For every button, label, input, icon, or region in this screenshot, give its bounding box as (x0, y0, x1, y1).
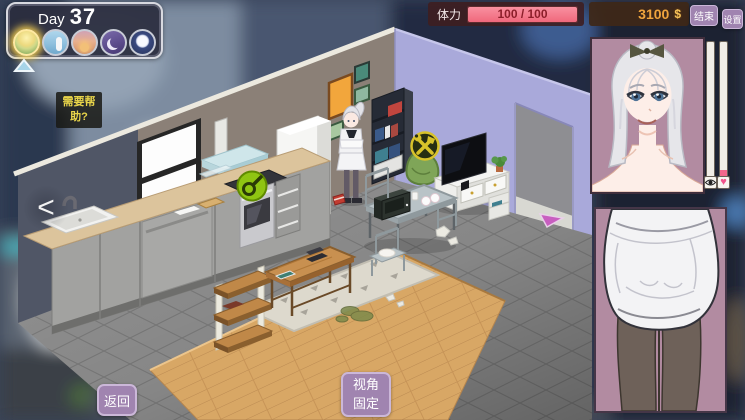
time-icon-dawn[interactable] (13, 29, 40, 56)
time-icon-morning[interactable] (42, 29, 69, 56)
stamina-value: 100 / 100 (467, 6, 578, 23)
day-label: Day (38, 11, 65, 28)
time-of-day-row (13, 29, 156, 56)
help-note[interactable]: 需要帮助? (56, 92, 102, 128)
day-title: Day 37 (38, 4, 96, 30)
day-number: 37 (70, 4, 96, 30)
character-face-portrait[interactable] (590, 37, 705, 194)
affection-stat-bar (719, 41, 728, 186)
time-icon-midnight[interactable] (129, 29, 156, 56)
time-icon-night[interactable] (100, 29, 127, 56)
observation-stat-bar (706, 41, 715, 186)
money-amount: 3100 (638, 6, 669, 22)
view-lock-button[interactable]: 视角 固定 (341, 372, 391, 417)
body-art (596, 209, 725, 411)
money-display: 3100 $ (589, 2, 689, 26)
day-banner: Day 37 (6, 2, 163, 59)
prev-arrow-button[interactable]: < (24, 184, 68, 232)
stamina-label: 体力 (437, 6, 461, 23)
heart-icon: ♥ (717, 176, 730, 189)
view-lock-line1: 视角 (353, 376, 379, 395)
settings-button[interactable]: 设置 (722, 9, 743, 29)
character-body-portrait[interactable] (594, 207, 727, 413)
stamina-track: 100 / 100 (467, 6, 578, 23)
back-button[interactable]: 返回 (97, 384, 137, 416)
view-lock-line2: 固定 (353, 395, 379, 414)
time-pointer-icon (13, 58, 35, 73)
crescent-moon-glyph (110, 36, 122, 48)
repair-icon[interactable] (412, 133, 439, 160)
cup (412, 192, 418, 200)
time-icon-dusk[interactable] (71, 29, 98, 56)
game-screen: Day 37 需要帮助? < 体力 100 / 100 3100 $ 结束 设置 (0, 0, 745, 420)
end-button[interactable]: 结束 (690, 5, 718, 26)
eye-icon (704, 176, 717, 189)
bottle-glyph (56, 37, 62, 51)
coin-icon: $ (674, 7, 681, 21)
setting-sun-glyph (80, 43, 89, 52)
face-art (592, 39, 703, 192)
cook-icon[interactable] (238, 172, 267, 201)
drawer-stack (276, 174, 300, 238)
stamina-bar: 体力 100 / 100 (428, 2, 584, 26)
